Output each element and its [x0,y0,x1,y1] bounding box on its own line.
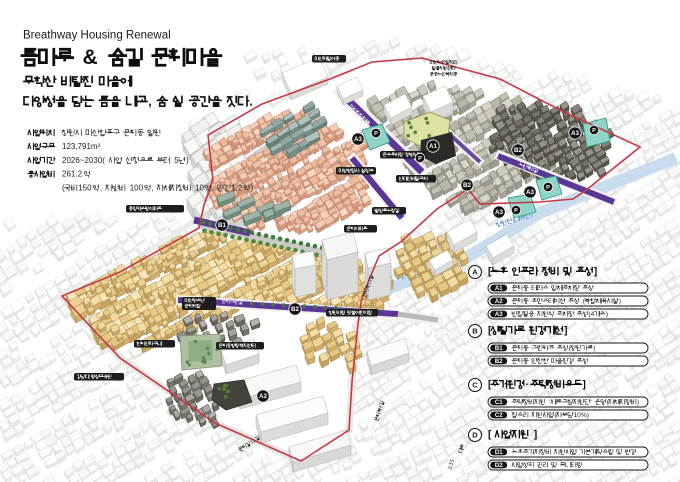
svg-text:): ) [637,399,639,406]
svg-text:A2: A2 [495,299,503,305]
svg-text:P: P [514,208,518,214]
svg-text:D: D [472,431,478,440]
svg-text:,: , [212,183,214,192]
svg-text:C1: C1 [495,400,503,406]
svg-text:A3: A3 [571,130,579,137]
svg-text:5: 5 [174,156,179,165]
svg-text:B2: B2 [514,147,522,154]
svg-text:': ' [591,399,592,406]
svg-text:A3: A3 [354,136,362,143]
svg-text:,: , [151,183,153,192]
svg-text:A1: A1 [429,143,437,150]
svg-text:261.2: 261.2 [62,170,83,179]
svg-text:C: C [472,381,478,390]
svg-text:(: ( [62,183,65,192]
svg-text:123,791m²: 123,791m² [62,142,101,151]
svg-text:P: P [374,131,378,137]
svg-text:D1: D1 [495,450,503,456]
svg-text:&: & [83,46,98,69]
svg-text:B1: B1 [495,346,503,352]
svg-text:A: A [472,268,478,277]
svg-text:A3: A3 [495,209,503,216]
svg-text:): ) [593,345,595,352]
svg-text:]: ] [594,266,597,277]
svg-text:): ) [251,183,254,192]
svg-text:A3: A3 [495,312,503,318]
svg-text:]: ] [534,429,537,440]
svg-text:.: . [249,94,253,108]
svg-text:,: , [148,94,152,108]
svg-text:1.2: 1.2 [231,183,243,192]
svg-text:): ) [619,298,621,305]
svg-text:Breathway Housing Renewal: Breathway Housing Renewal [23,30,171,42]
svg-text:(4: (4 [588,311,594,318]
svg-text:B1: B1 [218,222,226,229]
svg-text:B: B [472,327,478,336]
svg-text:,: , [100,183,102,192]
svg-text:]: ] [564,325,567,336]
svg-text:150: 150 [78,183,92,192]
svg-text:]: ] [583,379,586,390]
svg-text:P: P [418,156,422,162]
svg-text:P: P [546,185,550,191]
svg-text:·: · [526,379,529,390]
svg-text:D2: D2 [495,463,503,469]
svg-text:): ) [606,311,608,318]
svg-text:': ' [549,399,550,406]
svg-text:): ) [186,156,189,165]
svg-text:B2: B2 [291,306,299,313]
svg-text:A1: A1 [495,286,503,292]
svg-text:2026~2030(: 2026~2030( [62,156,105,165]
svg-text:A2: A2 [259,393,267,400]
svg-text:B2: B2 [495,359,503,365]
svg-text:A3: A3 [526,189,534,196]
svg-text:P: P [592,128,596,134]
svg-text:10%): 10%) [574,412,589,419]
svg-text:B2: B2 [463,182,471,189]
svg-text:100: 100 [130,183,144,192]
svg-text:10: 10 [195,183,204,192]
svg-text:C2: C2 [495,413,503,419]
